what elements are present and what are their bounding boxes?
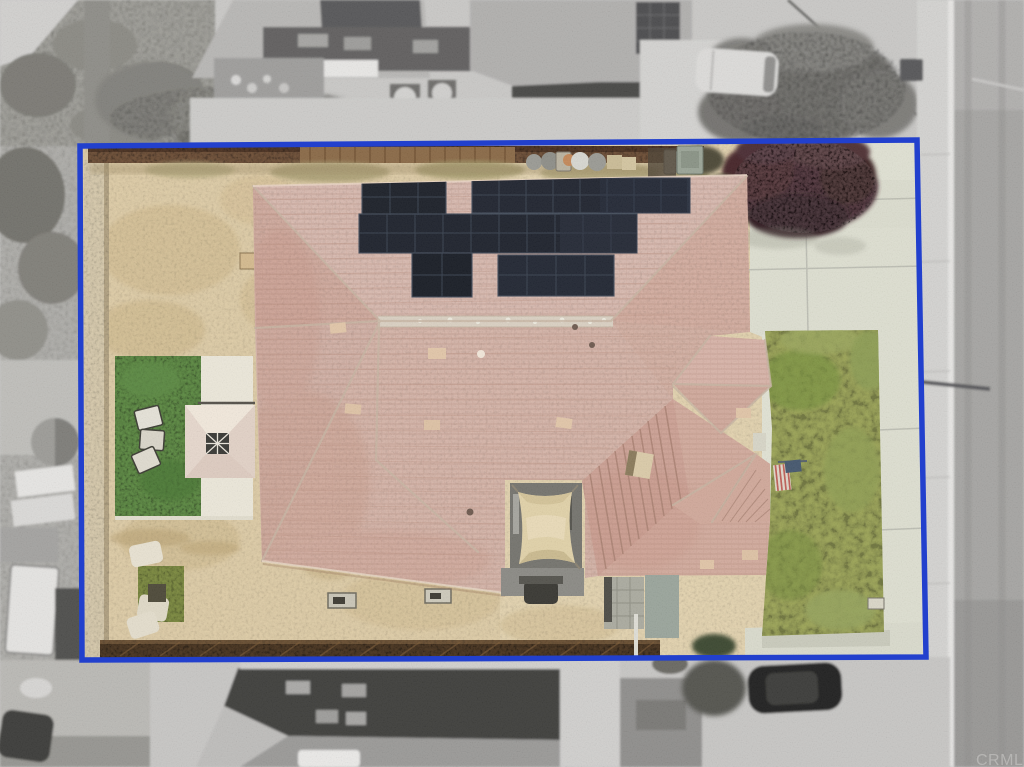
- svg-text:CRMLS: CRMLS: [976, 752, 1024, 767]
